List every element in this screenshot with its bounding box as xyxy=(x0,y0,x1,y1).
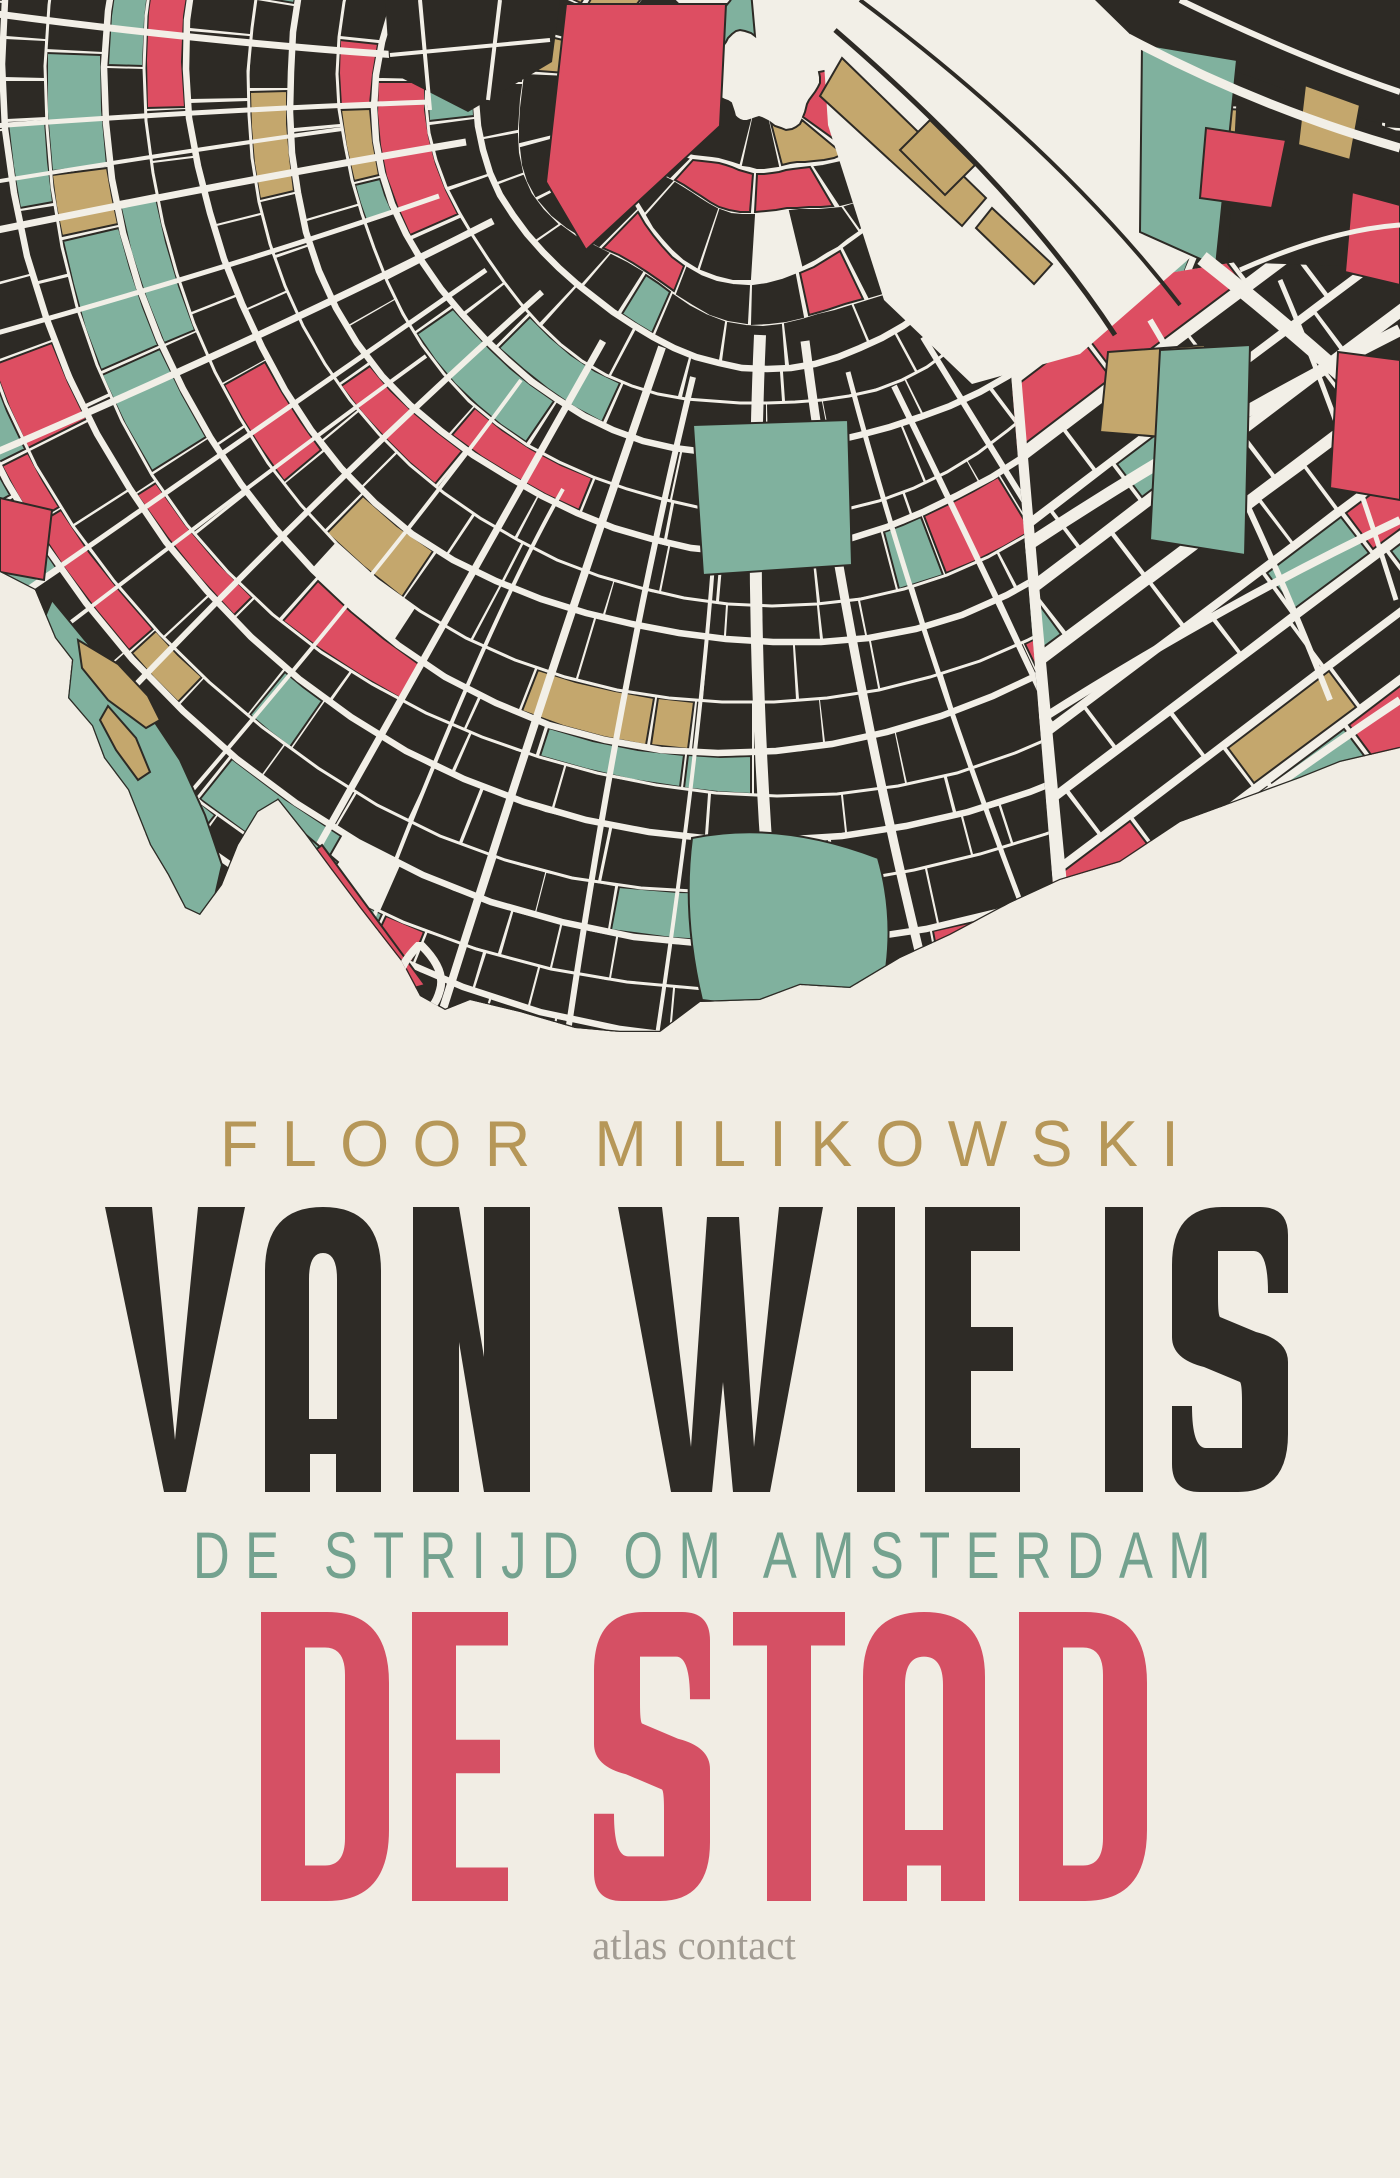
svg-text:DE STRIJD OM AMSTERDAM: DE STRIJD OM AMSTERDAM xyxy=(193,1518,1226,1592)
svg-text:FLOOR MILIKOWSKI: FLOOR MILIKOWSKI xyxy=(220,1107,1202,1180)
svg-text:atlas contact: atlas contact xyxy=(592,1922,796,1968)
